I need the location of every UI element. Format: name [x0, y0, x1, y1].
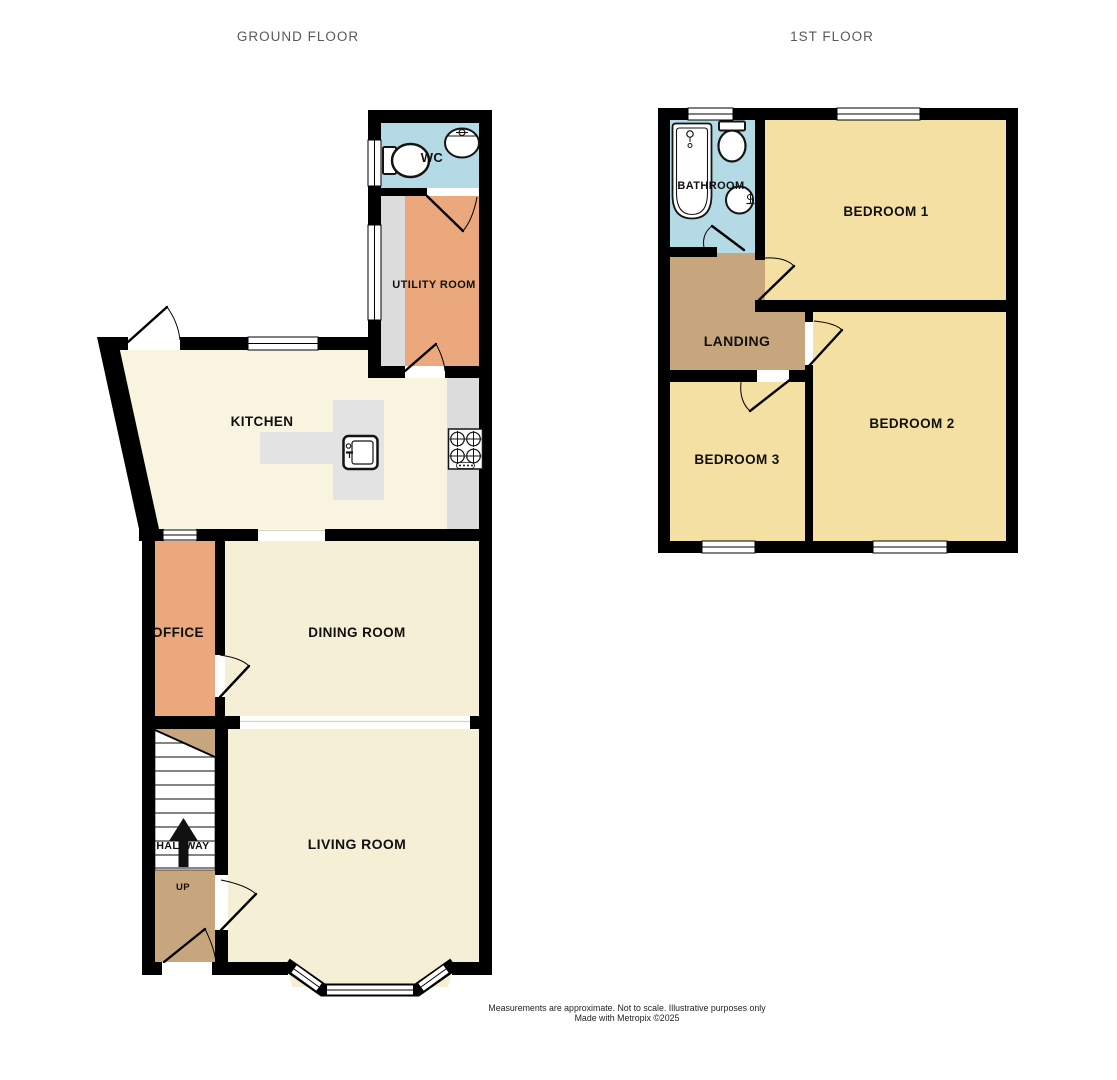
room-label-wc: WC: [421, 150, 444, 165]
wall-segment: [142, 716, 240, 729]
ground-floor-title: GROUND FLOOR: [237, 29, 359, 44]
bedroom2-window: [873, 541, 947, 553]
room-label-hallway: HALLWAY: [156, 840, 209, 852]
wall-segment: [670, 370, 757, 382]
stove-knob: [459, 465, 461, 467]
room-label-bedroom1: BEDROOM 1: [843, 204, 928, 219]
ground-floor-plan: WC UTILITY ROOM KITCHEN OFFICE DINING RO…: [97, 110, 492, 990]
stove-knob: [463, 465, 465, 467]
wall-segment: [215, 697, 225, 716]
wall-segment: [318, 337, 368, 350]
kitchen-exterior-door: [128, 307, 180, 342]
wall-segment: [452, 962, 492, 975]
floor-plan-svg: GROUND FLOOR 1ST FLOOR: [0, 0, 1117, 1080]
bathroom-toilet-icon: [719, 122, 746, 162]
sink-basin: [352, 441, 373, 464]
wall-segment: [215, 541, 225, 655]
wall-segment: [180, 337, 248, 350]
kitchen-window: [248, 337, 318, 350]
wall-segment: [805, 312, 813, 322]
stove-knob: [471, 465, 473, 467]
kitchen-sink-icon: [344, 436, 378, 469]
wall-segment: [670, 247, 717, 257]
wall-segment: [755, 108, 765, 260]
wc-sink-icon: [445, 129, 479, 158]
door-leaf: [128, 307, 167, 342]
wall-segment: [368, 110, 492, 123]
door-swing-arc: [167, 307, 180, 340]
wall-segment: [325, 529, 492, 541]
room-label-utility: UTILITY ROOM: [392, 279, 475, 291]
wall-segment: [479, 110, 492, 975]
bathtub-tap: [687, 131, 693, 137]
disclaimer-text: Measurements are approximate. Not to sca…: [488, 1003, 766, 1013]
wall-segment: [142, 532, 155, 975]
room-label-landing: LANDING: [704, 333, 771, 349]
wall-segment: [212, 962, 288, 975]
stairs-up-label: UP: [176, 882, 190, 893]
stove-body: [449, 429, 483, 469]
bathtub-icon: [673, 124, 712, 219]
office-internal-window: [163, 530, 197, 540]
wall-segment: [445, 366, 479, 378]
credit-text: Made with Metropix ©2025: [575, 1013, 680, 1023]
wall-segment: [755, 300, 1006, 312]
wall-segment: [368, 366, 405, 378]
room-label-kitchen: KITCHEN: [231, 414, 294, 429]
bathroom-window: [688, 108, 733, 120]
wall-segment: [1006, 108, 1018, 553]
bedroom1-window: [837, 108, 920, 120]
room-label-living: LIVING ROOM: [308, 836, 407, 852]
first-floor-title: 1ST FLOOR: [790, 29, 874, 44]
bedroom3-window: [702, 541, 755, 553]
room-label-bedroom2: BEDROOM 2: [869, 416, 954, 431]
wall-segment: [381, 188, 427, 196]
room-label-dining: DINING ROOM: [308, 625, 405, 640]
wc-window: [368, 140, 381, 186]
wall-segment: [805, 365, 813, 541]
wall-segment: [658, 108, 670, 553]
first-floor-plan: BATHROOM BEDROOM 1 LANDING BEDROOM 2 BED…: [658, 108, 1018, 553]
stove-icon: [449, 429, 483, 469]
floor-plan-canvas: GROUND FLOOR 1ST FLOOR: [0, 0, 1117, 1080]
toilet-bowl: [719, 131, 746, 162]
toilet-cistern: [719, 122, 745, 131]
wall-segment: [196, 529, 258, 541]
kitchen-island-horizontal: [260, 432, 333, 464]
wall-segment: [470, 716, 492, 729]
stove-knob: [467, 465, 469, 467]
wall-segment: [215, 729, 228, 875]
wall-segment: [215, 930, 228, 962]
wall-segment: [142, 962, 162, 975]
room-label-bedroom3: BEDROOM 3: [694, 452, 779, 467]
room-label-office: OFFICE: [152, 625, 204, 640]
utility-window: [368, 225, 381, 320]
sink-tap: [346, 444, 350, 448]
room-label-bathroom: BATHROOM: [677, 180, 744, 192]
